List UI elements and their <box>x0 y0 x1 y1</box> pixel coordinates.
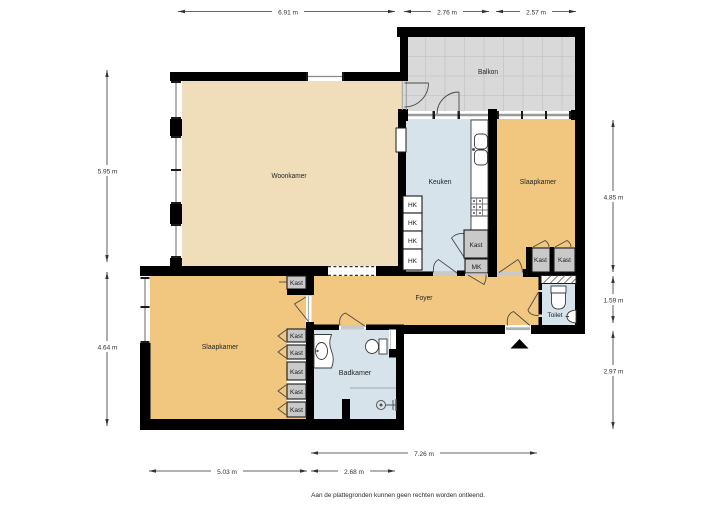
svg-text:5.95 m: 5.95 m <box>98 169 118 176</box>
svg-text:4.64 m: 4.64 m <box>98 345 118 352</box>
svg-text:Badkamer: Badkamer <box>339 370 372 377</box>
svg-text:HK: HK <box>408 258 418 265</box>
svg-text:2.97 m: 2.97 m <box>604 369 624 376</box>
svg-text:MK: MK <box>472 264 482 271</box>
svg-text:Kast: Kast <box>290 369 303 376</box>
svg-text:HK: HK <box>408 238 418 245</box>
svg-text:Kast: Kast <box>290 280 303 287</box>
svg-text:7.26 m: 7.26 m <box>414 451 434 458</box>
svg-text:HK: HK <box>408 220 418 227</box>
svg-text:6.91 m: 6.91 m <box>278 10 298 17</box>
svg-text:Kast: Kast <box>290 389 303 396</box>
svg-text:Slaapkamer: Slaapkamer <box>520 179 557 186</box>
svg-text:2.68 m: 2.68 m <box>344 469 364 476</box>
svg-text:Kast: Kast <box>290 333 303 340</box>
svg-text:5.03 m: 5.03 m <box>217 469 237 476</box>
svg-text:Toilet: Toilet <box>547 312 562 319</box>
svg-text:1.59 m: 1.59 m <box>604 298 624 305</box>
svg-text:Balkon: Balkon <box>478 69 498 76</box>
svg-text:2.57 m: 2.57 m <box>526 10 546 17</box>
svg-text:Aan de plattegronden kunnen ge: Aan de plattegronden kunnen geen rechten… <box>311 492 485 499</box>
svg-text:Kast: Kast <box>558 257 571 264</box>
svg-text:HK: HK <box>408 202 418 209</box>
svg-text:Slaapkamer: Slaapkamer <box>202 344 239 351</box>
svg-text:Woonkamer: Woonkamer <box>272 173 308 180</box>
svg-text:Kast: Kast <box>534 257 547 264</box>
svg-text:Kast: Kast <box>290 407 303 414</box>
svg-text:2.76 m: 2.76 m <box>437 10 457 17</box>
svg-text:Foyer: Foyer <box>416 295 434 302</box>
svg-text:4.85 m: 4.85 m <box>604 195 624 202</box>
svg-text:Kast: Kast <box>290 350 303 357</box>
svg-text:Keuken: Keuken <box>429 179 452 186</box>
svg-text:Kast: Kast <box>469 242 482 249</box>
